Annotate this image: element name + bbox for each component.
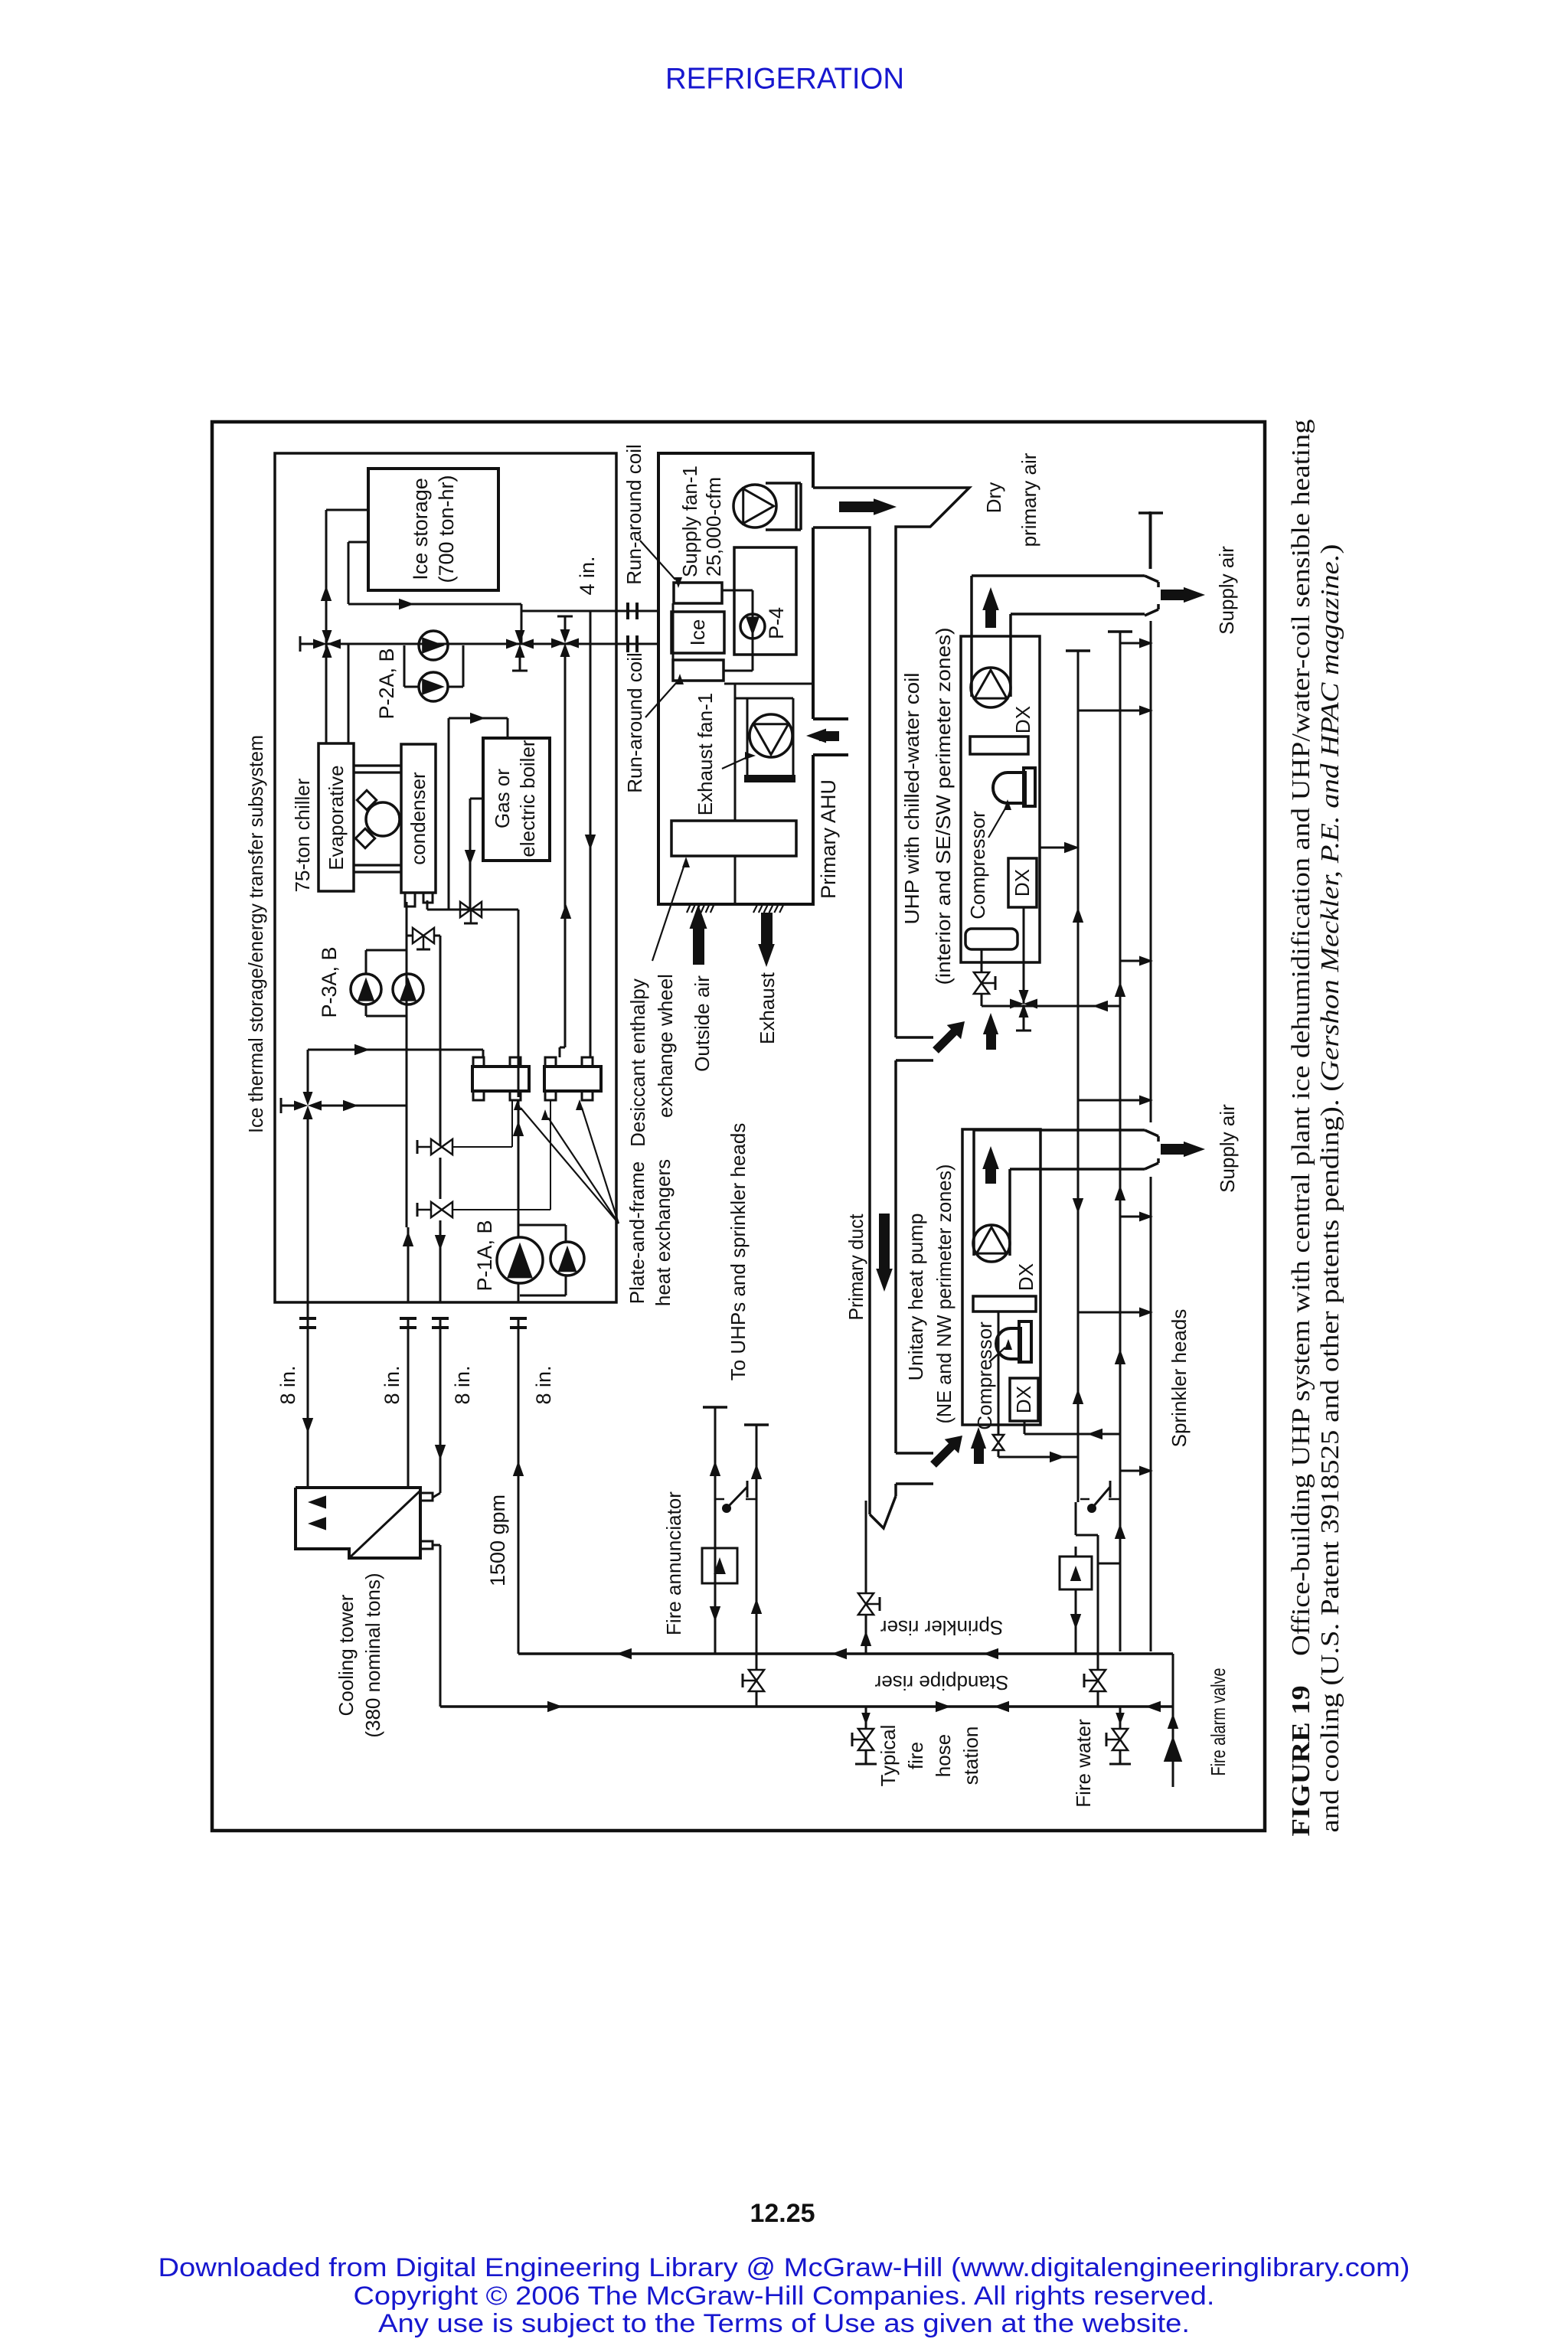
svg-text:4 in.: 4 in. <box>576 556 599 595</box>
svg-text:Sprinkler riser: Sprinkler riser <box>880 1616 1003 1639</box>
svg-text:primary air: primary air <box>1018 452 1040 547</box>
svg-text:8 in.: 8 in. <box>451 1365 474 1404</box>
svg-text:Supply fan-1: Supply fan-1 <box>678 465 701 577</box>
svg-text:DX: DX <box>1012 1386 1035 1413</box>
svg-text:Ice storage: Ice storage <box>409 478 432 580</box>
svg-text:condenser: condenser <box>407 772 430 865</box>
svg-text:UHP with chilled-water coil: UHP with chilled-water coil <box>900 673 923 925</box>
svg-text:Fire water: Fire water <box>1072 1719 1095 1808</box>
svg-text:25,000-cfm: 25,000-cfm <box>702 477 725 577</box>
svg-text:Sprinkler heads: Sprinkler heads <box>1168 1309 1191 1448</box>
svg-text:FIGURE 19 Office-building UHP: FIGURE 19 Office-building UHP system wit… <box>1287 420 1315 1837</box>
svg-text:Copyright © 2006 The McGraw-Hi: Copyright © 2006 The McGraw-Hill Compani… <box>354 2282 1215 2311</box>
svg-text:Compressor: Compressor <box>966 811 989 920</box>
svg-text:P-4: P-4 <box>765 607 788 639</box>
svg-text:Downloaded from Digital Engine: Downloaded from Digital Engineering Libr… <box>158 2253 1410 2282</box>
svg-text:Supply air: Supply air <box>1216 1104 1239 1193</box>
svg-text:DX: DX <box>1014 1263 1037 1291</box>
svg-text:Exhaust: Exhaust <box>756 972 779 1044</box>
svg-text:75-ton chiller: 75-ton chiller <box>291 778 314 892</box>
svg-text:(380 nominal tons): (380 nominal tons) <box>361 1573 384 1737</box>
svg-text:Evaporative: Evaporative <box>325 765 348 870</box>
svg-text:(interior and SE/SW perimeter: (interior and SE/SW perimeter zones) <box>932 628 955 985</box>
svg-text:electric boiler: electric boiler <box>516 740 539 857</box>
svg-text:(700 ton-hr): (700 ton-hr) <box>435 475 458 583</box>
svg-text:Plate-and-frame: Plate-and-frame <box>626 1161 648 1304</box>
svg-text:Outside air: Outside air <box>691 975 714 1072</box>
svg-text:fire: fire <box>904 1742 927 1769</box>
svg-text:and cooling (U.S. Patent 39185: and cooling (U.S. Patent 3918525 and oth… <box>1316 544 1344 1833</box>
svg-text:Run-around coil: Run-around coil <box>622 444 645 585</box>
svg-text:Cooling tower: Cooling tower <box>335 1594 358 1716</box>
svg-text:Exhaust fan-1: Exhaust fan-1 <box>694 693 717 815</box>
svg-text:Primary duct: Primary duct <box>844 1214 867 1321</box>
svg-text:12.25: 12.25 <box>750 2199 815 2228</box>
svg-text:8 in.: 8 in. <box>381 1365 403 1404</box>
svg-text:station: station <box>959 1726 982 1785</box>
svg-text:exchange wheel: exchange wheel <box>654 974 677 1118</box>
svg-text:heat exchangers: heat exchangers <box>652 1159 675 1306</box>
svg-text:P-2A, B: P-2A, B <box>375 648 398 719</box>
svg-text:P-3A, B: P-3A, B <box>318 946 341 1018</box>
svg-text:8 in.: 8 in. <box>276 1365 299 1404</box>
svg-text:Standpipe riser: Standpipe riser <box>874 1671 1008 1694</box>
svg-text:Any use is subject to the Term: Any use is subject to the Terms of Use a… <box>378 2309 1190 2338</box>
svg-text:hose: hose <box>932 1734 955 1777</box>
svg-text:Fire alarm valve: Fire alarm valve <box>1207 1668 1230 1776</box>
svg-text:REFRIGERATION: REFRIGERATION <box>665 63 904 96</box>
svg-text:Ice thermal storage/energy tra: Ice thermal storage/energy transfer subs… <box>244 735 267 1133</box>
svg-text:1500 gpm: 1500 gpm <box>486 1494 509 1586</box>
svg-text:P-1A, B: P-1A, B <box>473 1220 496 1291</box>
svg-text:Fire annunciator: Fire annunciator <box>662 1491 685 1635</box>
svg-text:DX: DX <box>1011 706 1034 733</box>
svg-text:Typical: Typical <box>877 1725 900 1787</box>
svg-text:Compressor: Compressor <box>973 1321 996 1430</box>
svg-text:(NE and NW perimeter zones): (NE and NW perimeter zones) <box>933 1165 955 1424</box>
svg-text:Dry: Dry <box>982 482 1005 513</box>
svg-text:To UHPs and sprinkler heads: To UHPs and sprinkler heads <box>727 1123 750 1381</box>
svg-text:Desiccant enthalpy: Desiccant enthalpy <box>626 978 649 1147</box>
svg-text:8 in.: 8 in. <box>532 1365 555 1404</box>
svg-text:Gas or: Gas or <box>491 769 514 828</box>
svg-text:Unitary heat pump: Unitary heat pump <box>904 1214 927 1381</box>
svg-text:Primary AHU: Primary AHU <box>817 779 840 899</box>
svg-text:Ice: Ice <box>686 619 709 646</box>
svg-text:Run-around coil: Run-around coil <box>623 652 646 793</box>
svg-text:DX: DX <box>1011 869 1034 897</box>
svg-text:Supply air: Supply air <box>1215 546 1238 635</box>
